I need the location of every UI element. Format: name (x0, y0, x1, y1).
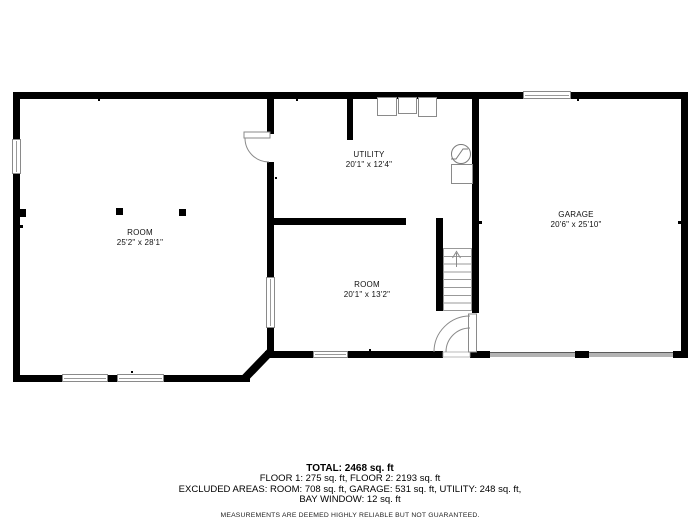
plan-symbols-overlay (0, 0, 700, 525)
wall-tick-3 (577, 99, 579, 101)
room-left-dimensions: 25'2" x 28'1" (70, 238, 210, 248)
utility-fixture-box (451, 164, 473, 184)
summary-disclaimer: MEASUREMENTS ARE DEEMED HIGHLY RELIABLE … (0, 512, 700, 520)
wall-tick-4 (20, 225, 23, 228)
water-heater-icon (451, 144, 471, 164)
wall-tick-1 (98, 99, 100, 101)
garage-door-1 (490, 352, 575, 357)
summary-excluded-2: BAY WINDOW: 12 sq. ft (0, 495, 700, 506)
garage-dimensions: 20'6" x 25'10" (506, 220, 646, 230)
label-garage: GARAGE 20'6" x 25'10" (506, 210, 646, 229)
appliance-1 (377, 97, 397, 116)
wall-tick-7 (678, 221, 681, 224)
door-interior-left (244, 132, 270, 162)
wall-utility-bottom (267, 218, 406, 225)
garage-name: GARAGE (506, 210, 646, 220)
utility-name: UTILITY (299, 150, 439, 160)
appliance-3 (418, 97, 437, 117)
wall-top (13, 92, 688, 99)
window-bottom-middle (313, 351, 348, 358)
wall-left (13, 92, 20, 382)
wall-interior-left-lower (267, 162, 274, 358)
wall-tick-9 (131, 371, 133, 373)
wall-stub-left (20, 209, 26, 217)
floorplan-page: ROOM 25'2" x 28'1" UTILITY 20'1" x 12'4"… (0, 0, 700, 525)
room-middle-name: ROOM (297, 280, 437, 290)
appliance-2 (398, 97, 417, 114)
wall-right (681, 92, 688, 358)
wall-garage-door-post (575, 351, 589, 358)
wall-tick-5 (275, 177, 277, 179)
wall-interior-left-upper (267, 99, 274, 134)
garage-door-2 (589, 352, 673, 357)
utility-dimensions: 20'1" x 12'4" (299, 160, 439, 170)
window-bottom-left-1 (62, 374, 108, 382)
area-summary: TOTAL: 2468 sq. ft FLOOR 1: 275 sq. ft, … (0, 463, 700, 520)
room-middle-dimensions: 20'1" x 13'2" (297, 290, 437, 300)
wall-bottom-middle (265, 351, 443, 358)
wall-bottom-middle-right (470, 351, 490, 358)
label-utility: UTILITY 20'1" x 12'4" (299, 150, 439, 169)
label-room-left: ROOM 25'2" x 28'1" (70, 228, 210, 247)
label-room-middle: ROOM 20'1" x 13'2" (297, 280, 437, 299)
wall-tick-2 (296, 99, 298, 101)
wall-stub-top (347, 99, 353, 140)
wall-garage-left-upper (472, 99, 479, 313)
window-garage-top (523, 91, 571, 99)
window-interior-wall (266, 277, 275, 328)
room-left-name: ROOM (70, 228, 210, 238)
wall-tick-8 (369, 349, 371, 351)
window-left-wall (12, 139, 21, 174)
window-bottom-left-2 (117, 374, 164, 382)
door-stop-mark (469, 328, 473, 332)
wall-stairwell-left (436, 218, 443, 311)
post-column-1 (116, 208, 123, 215)
staircase (443, 248, 472, 311)
wall-tick-6 (479, 221, 482, 224)
post-column-2 (179, 209, 186, 216)
